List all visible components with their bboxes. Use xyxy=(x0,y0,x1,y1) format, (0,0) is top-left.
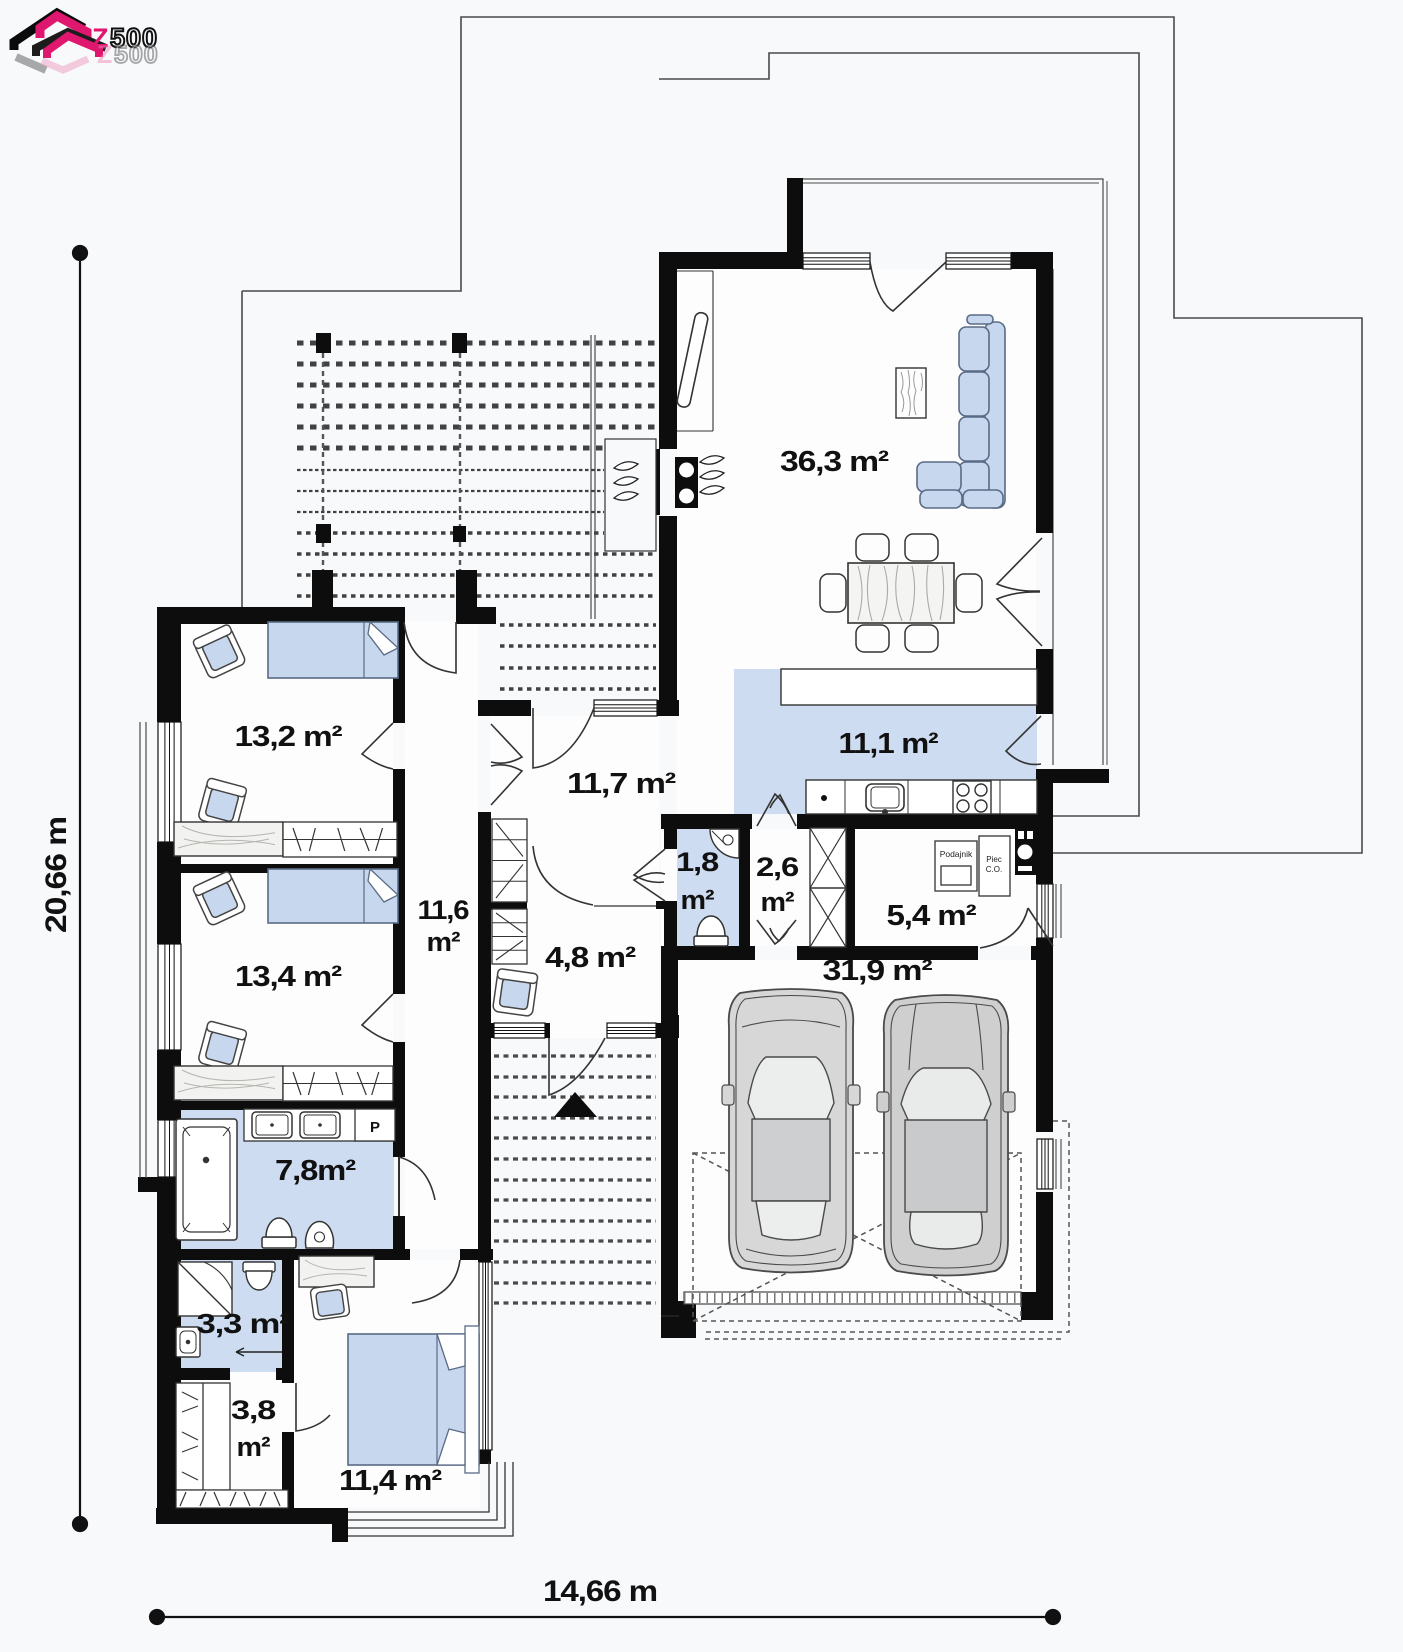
svg-text:31,9 m²: 31,9 m² xyxy=(823,955,934,987)
svg-text:m²: m² xyxy=(761,887,795,917)
svg-text:m²: m² xyxy=(427,927,461,957)
svg-text:13,4 m²: 13,4 m² xyxy=(235,961,343,993)
svg-text:500: 500 xyxy=(114,41,159,69)
svg-text:7,8m²: 7,8m² xyxy=(275,1155,357,1187)
svg-text:11,7 m²: 11,7 m² xyxy=(567,768,677,800)
svg-text:2,6: 2,6 xyxy=(756,852,799,882)
svg-text:36,3 m²: 36,3 m² xyxy=(780,446,890,478)
svg-text:4,8 m²: 4,8 m² xyxy=(545,942,637,974)
svg-text:Piec: Piec xyxy=(986,855,1002,864)
svg-text:m²: m² xyxy=(237,1432,271,1462)
svg-text:P: P xyxy=(370,1119,380,1136)
svg-text:C.O.: C.O. xyxy=(986,865,1002,874)
svg-text:Podajnik: Podajnik xyxy=(940,849,973,859)
svg-text:20,66 m: 20,66 m xyxy=(40,817,73,933)
svg-text:13,2 m²: 13,2 m² xyxy=(235,721,344,753)
svg-text:11,1 m²: 11,1 m² xyxy=(839,728,939,760)
svg-text:11,4 m²: 11,4 m² xyxy=(339,1465,442,1497)
svg-text:14,66 m: 14,66 m xyxy=(543,1575,657,1608)
svg-text:11,6: 11,6 xyxy=(418,895,470,925)
svg-text:5,4 m²: 5,4 m² xyxy=(887,900,978,932)
svg-text:3,8: 3,8 xyxy=(231,1395,276,1425)
svg-text:m²: m² xyxy=(681,885,715,915)
svg-text:1,8: 1,8 xyxy=(676,847,719,877)
svg-text:3,3 m²: 3,3 m² xyxy=(197,1308,291,1339)
svg-text:Z: Z xyxy=(97,41,112,69)
